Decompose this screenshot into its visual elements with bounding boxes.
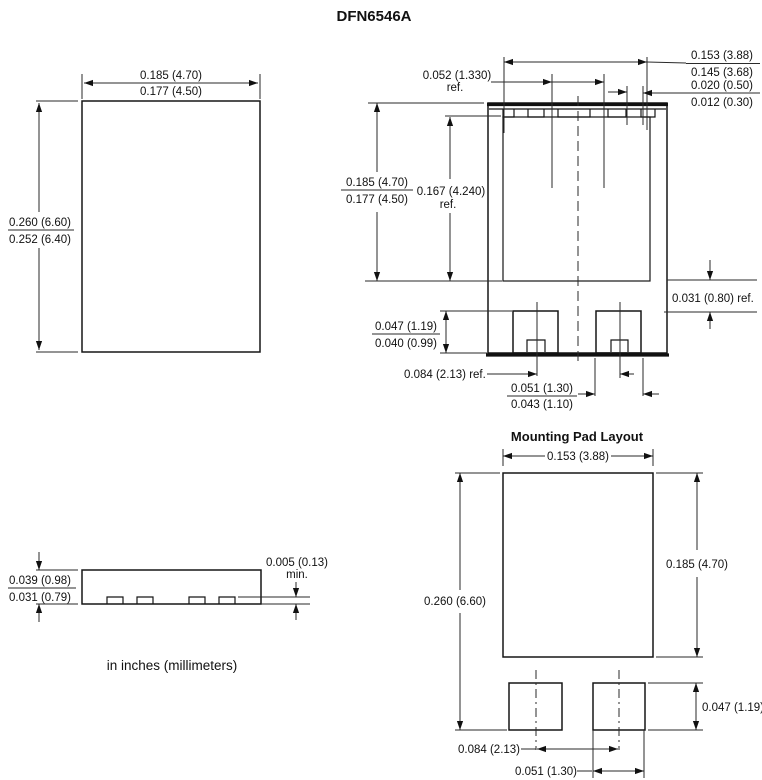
dim-pin-span-max: 0.153 (3.88) <box>691 50 753 62</box>
package-drawing-sheet: DFN6546A 0.185 (4.70) 0.177 (4.50) 0.260… <box>0 0 762 780</box>
top-view-width-max: 0.185 (4.70) <box>140 70 202 82</box>
top-view-body-outline <box>82 101 260 352</box>
pad-height-dim: 0.185 (4.70) <box>666 559 728 571</box>
dim-tab-height-min: 0.040 (0.99) <box>375 338 437 350</box>
top-view-height-max: 0.260 (6.60) <box>9 217 71 229</box>
bottom-view-terminal-notches <box>503 109 655 117</box>
dim-body-height-min: 0.177 (4.50) <box>346 194 408 206</box>
dim-tab-spacing: 0.084 (2.13) ref. <box>404 369 486 381</box>
bottom-view-left-tab-notch <box>527 340 545 352</box>
page-title: DFN6546A <box>336 8 411 25</box>
top-view-height-min: 0.252 (6.40) <box>9 234 71 246</box>
top-view-width-min: 0.177 (4.50) <box>140 86 202 98</box>
top-view: 0.185 (4.70) 0.177 (4.50) 0.260 (6.60) 0… <box>8 70 260 352</box>
bottom-view-exposed-pad <box>503 117 650 281</box>
dim-pad-height-ref: ref. <box>440 199 457 211</box>
dim-standoff: 0.005 (0.13) <box>266 557 328 569</box>
mounting-pad-title: Mounting Pad Layout <box>511 429 644 444</box>
side-view-dimension-lines <box>8 552 296 622</box>
side-view-terminal-bumps <box>107 597 235 604</box>
dim-tab-height-max: 0.047 (1.19) <box>375 321 437 333</box>
top-view-extension-lines <box>36 74 260 352</box>
dim-thickness-max: 0.039 (0.98) <box>9 575 71 587</box>
pad-tab-height-dim: 0.047 (1.19) <box>702 702 762 714</box>
side-view-extension-lines <box>36 570 310 604</box>
dim-pad-offset: 0.031 (0.80) ref. <box>672 293 754 305</box>
pad-total-height-dim: 0.260 (6.60) <box>424 596 486 608</box>
package-drawing: DFN6546A 0.185 (4.70) 0.177 (4.50) 0.260… <box>0 0 762 780</box>
mounting-pad-main-pad <box>503 473 653 657</box>
side-view-body-outline <box>82 570 261 604</box>
dim-thickness-min: 0.031 (0.79) <box>9 592 71 604</box>
dim-pin-span-min: 0.145 (3.68) <box>691 67 753 79</box>
mounting-pad-extension-lines <box>455 449 703 778</box>
side-view: 0.039 (0.98) 0.031 (0.79) 0.005 (0.13) m… <box>8 552 328 673</box>
dim-pitch-ref: ref. <box>447 82 464 94</box>
bottom-view-left-tab <box>513 311 558 353</box>
dim-pitch: 0.052 (1.330) <box>423 70 492 82</box>
dim-pin-width-min: 0.012 (0.30) <box>691 97 753 109</box>
dim-tab-width-min: 0.043 (1.10) <box>511 399 573 411</box>
pad-tab-spacing-dim: 0.084 (2.13) <box>458 744 520 756</box>
mounting-pad-layout: Mounting Pad Layout <box>424 429 762 778</box>
dim-pad-height: 0.167 (4.240) <box>417 186 486 198</box>
mounting-pad-dimension-lines <box>460 456 697 771</box>
pad-width-dim: 0.153 (3.88) <box>547 451 609 463</box>
units-caption: in inches (millimeters) <box>107 658 238 673</box>
pad-tab-width-dim: 0.051 (1.30) <box>515 766 577 778</box>
dim-tab-width-max: 0.051 (1.30) <box>511 383 573 395</box>
dim-body-height-max: 0.185 (4.70) <box>346 177 408 189</box>
bottom-view: 0.153 (3.88) 0.145 (3.68) 0.020 (0.50) 0… <box>341 50 760 411</box>
dim-pin-width-max: 0.020 (0.50) <box>691 80 753 92</box>
dim-standoff-min: min. <box>286 569 308 581</box>
bottom-view-right-tab <box>596 311 641 353</box>
